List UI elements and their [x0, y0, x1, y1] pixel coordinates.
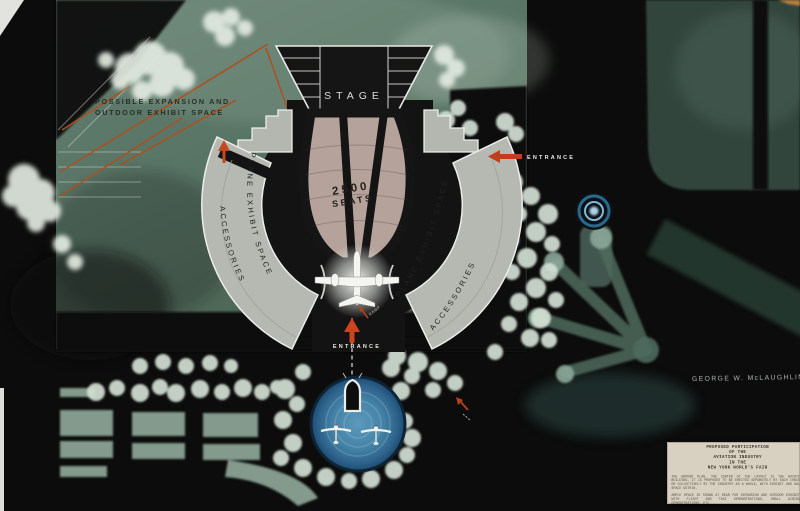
- entrance-side-label: ENTRANCE: [527, 155, 575, 161]
- entrance-main-label: ENTRANCE: [333, 344, 381, 350]
- site-plan-board: STAGE 2500 SEATS PLANE EXHIBIT SPACE ACC…: [0, 0, 800, 511]
- small-marker-arrow-icon: [456, 397, 471, 421]
- city-blocks: [60, 388, 318, 506]
- site-plan-rendering: STAGE 2500 SEATS PLANE EXHIBIT SPACE ACC…: [0, 0, 800, 511]
- card-paragraph: AMPLE SPACE IS SHOWN AT REAR FOR EXPANSI…: [671, 493, 800, 504]
- pylon-marker: [345, 380, 360, 411]
- expansion-note-line2: OUTDOOR EXHIBIT SPACE: [95, 107, 285, 118]
- stage-label: STAGE: [324, 90, 384, 102]
- card-paragraph: THE GROUND PLAN. THE CENTER OF THE LAYOU…: [671, 475, 800, 490]
- caption-card-title: PROPOSED PARTICIPATION OF THE AVIATION I…: [671, 445, 800, 470]
- fountain: [575, 192, 613, 230]
- expansion-note-line1: POSSIBLE EXPANSION AND: [95, 96, 285, 107]
- caption-card-body: THE GROUND PLAN. THE CENTER OF THE LAYOU…: [671, 475, 800, 504]
- caption-card: PROPOSED PARTICIPATION OF THE AVIATION I…: [667, 442, 800, 504]
- card-title-line: NEW YORK WORLD'S FAIR: [671, 466, 800, 471]
- pond: [311, 373, 405, 471]
- expansion-note: POSSIBLE EXPANSION AND OUTDOOR EXHIBIT S…: [95, 96, 285, 118]
- caption-card-content: PROPOSED PARTICIPATION OF THE AVIATION I…: [667, 442, 800, 504]
